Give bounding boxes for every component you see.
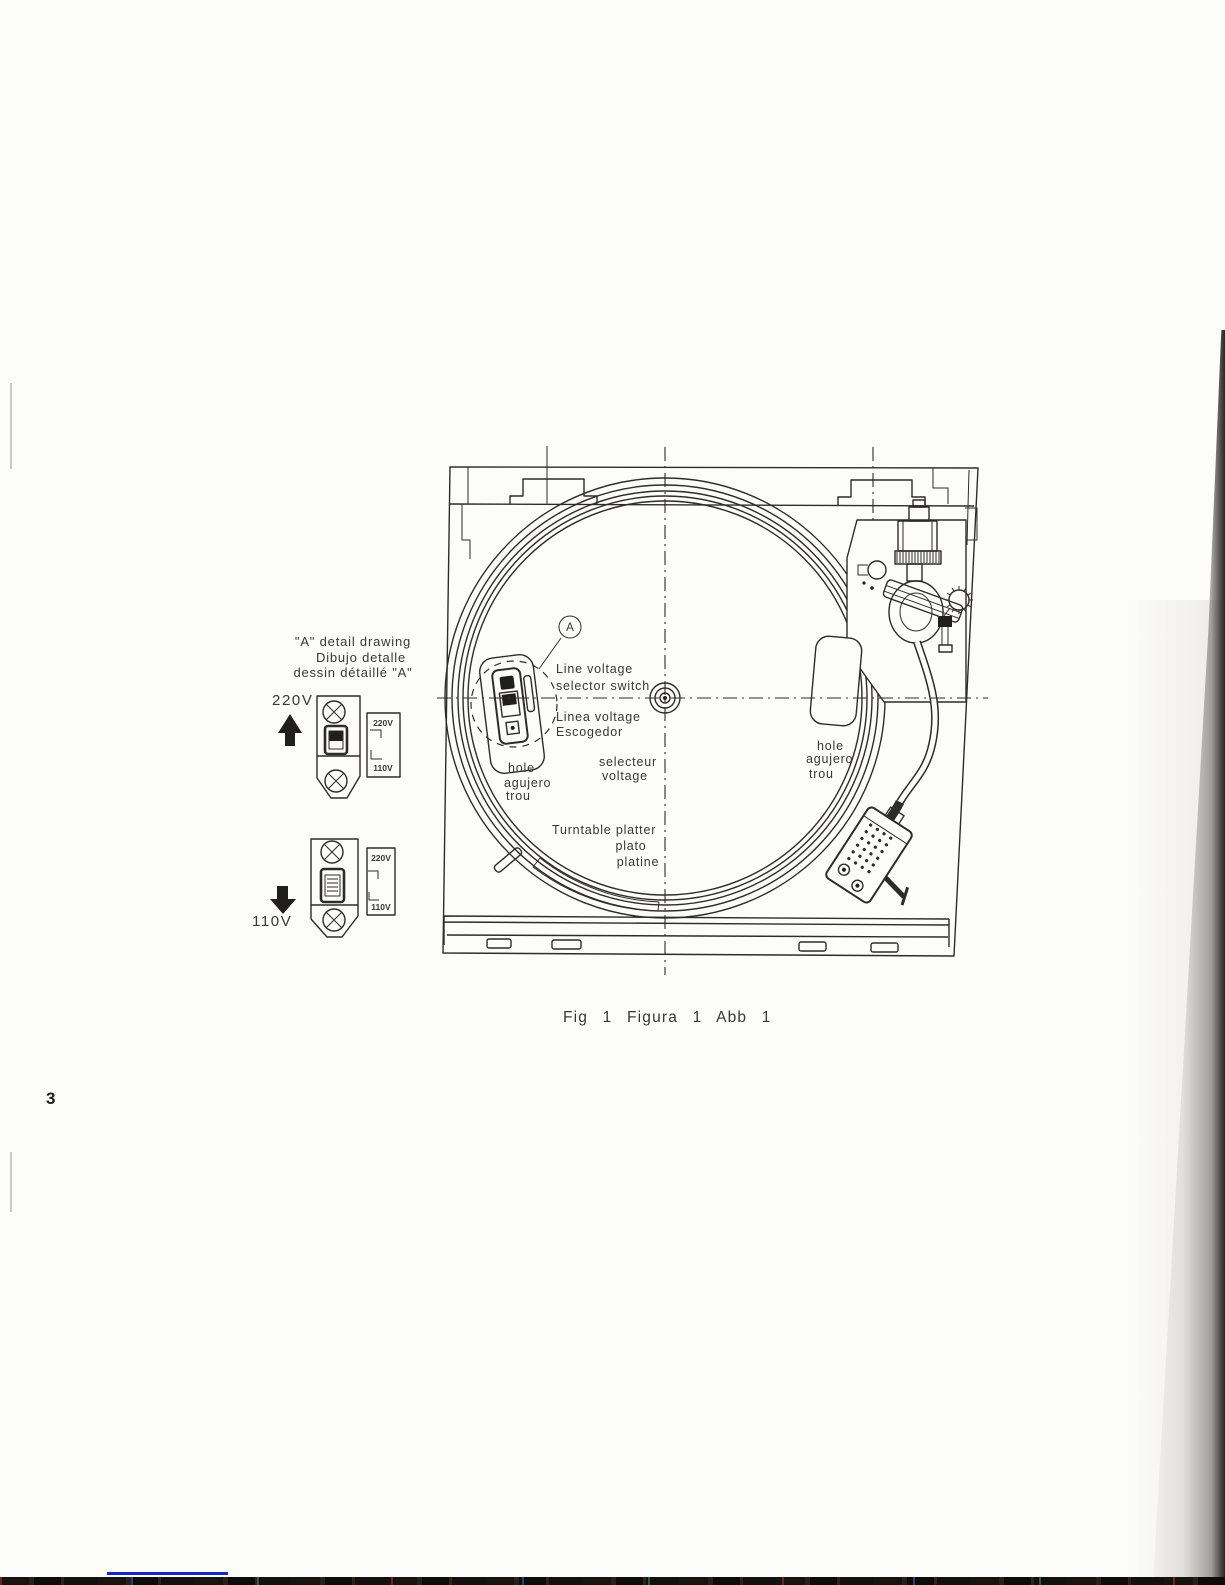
label-selector-es-2: Escogedor: [556, 725, 623, 739]
strobe-mark: [493, 847, 523, 874]
hinge-right: [838, 480, 925, 505]
scan-edge-strip: [0, 1577, 1225, 1585]
indicator-220v-bottom: 110V: [373, 763, 393, 773]
hole-cutout-right: [809, 635, 862, 727]
hinge-left: [510, 479, 597, 504]
switch-plate-110v: [311, 839, 358, 937]
foot-button: [552, 940, 581, 949]
indicator-110v-bottom: 110V: [371, 902, 391, 912]
label-selector-es-1: Linea voltage: [556, 710, 641, 724]
manual-page: "A" detail drawing Dibujo detalle dessin…: [0, 0, 1225, 1585]
label-hole-right-1: hole: [817, 739, 844, 753]
up-arrow-icon: [278, 714, 302, 746]
detail-annotation-line1: "A" detail drawing: [295, 634, 411, 649]
page-number: 3: [46, 1089, 55, 1108]
blue-underline-artifact: [107, 1572, 228, 1575]
front-rail: [444, 916, 949, 952]
switch-plate-220v: [317, 696, 360, 798]
label-hole-right-2: agujero: [806, 752, 853, 766]
detail-annotation-line2: Dibujo detalle: [316, 650, 406, 665]
screw-icon: [323, 909, 345, 931]
chassis-top-inner-line: [450, 504, 974, 506]
detail-annotation-line3: dessin détaillé "A": [293, 665, 412, 680]
tonearm-flex-joint: [889, 802, 900, 820]
figure-drawing: "A" detail drawing Dibujo detalle dessin…: [0, 0, 1225, 1585]
label-hole-right-3: trou: [809, 767, 834, 781]
label-hole-left-3: trou: [506, 789, 531, 803]
label-selector-en-2: selector switch: [556, 679, 650, 693]
screw-icon: [323, 701, 345, 723]
indicator-220v-top: 220V: [373, 718, 393, 728]
label-platter-3: platine: [617, 855, 659, 869]
label-platter-2: plato: [615, 839, 646, 853]
scan-margin-mark: [10, 383, 12, 469]
turntable-top-view: [437, 446, 988, 975]
screw-icon: [321, 841, 343, 863]
detail-marker-a-letter: A: [566, 622, 574, 634]
label-platter-1: Turntable platter: [552, 823, 656, 837]
indicator-110v-top: 220V: [371, 853, 391, 863]
label-hole-left-1: hole: [508, 761, 535, 775]
foot-button: [487, 939, 511, 948]
screw-icon: [325, 770, 347, 792]
hole-cutout-left: [478, 653, 546, 775]
label-220v: 220V: [272, 692, 313, 709]
scan-margin-mark: [10, 1152, 12, 1212]
chassis-corner-left: [462, 467, 470, 559]
label-selector-fr-1: selecteur: [599, 755, 657, 769]
label-110v: 110V: [252, 913, 292, 930]
label-selector-en-1: Line voltage: [556, 662, 633, 676]
foot-button: [871, 943, 898, 952]
figure-caption: Fig 1 Figura 1 Abb 1: [563, 1009, 772, 1026]
down-arrow-icon: [270, 886, 296, 914]
voltage-detail-drawings: [270, 696, 400, 937]
label-selector-fr-2: voltage: [602, 769, 648, 783]
foot-button: [799, 942, 826, 951]
label-hole-left-2: agujero: [504, 776, 551, 790]
